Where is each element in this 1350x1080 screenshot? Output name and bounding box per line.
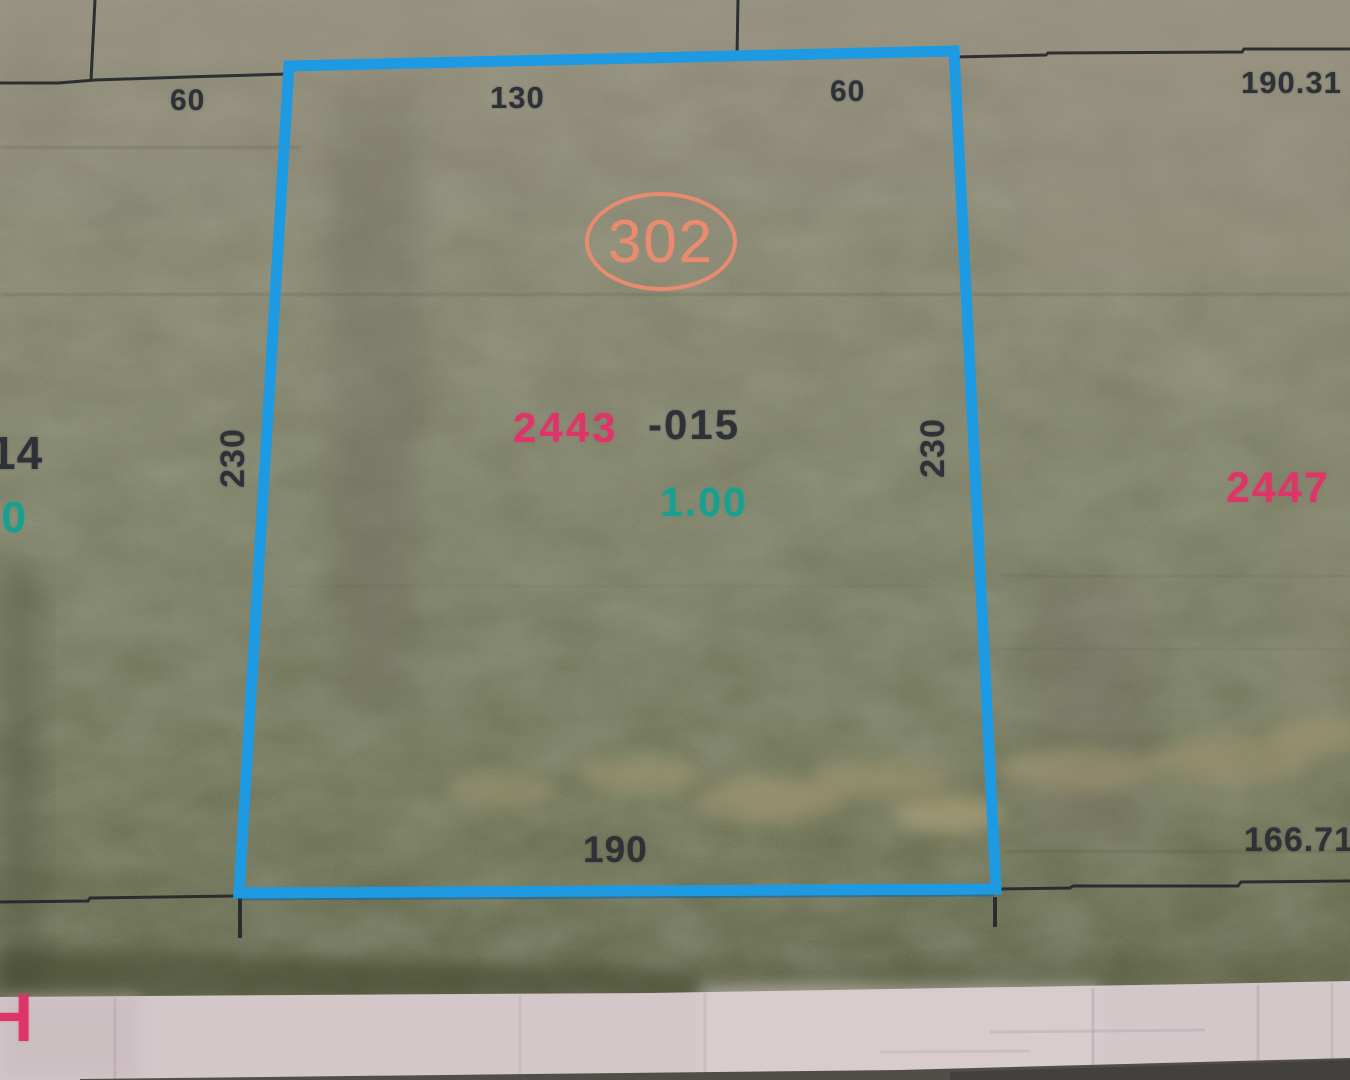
parcel-circle-badge: 302 [585,192,737,291]
dim-left-230-wrap: 230 [178,436,288,480]
dim-top-right-60: 60 [830,77,865,107]
dim-bottom-right-166-71: 166.71 [1244,823,1350,857]
parcel-circle-number: 302 [608,207,714,276]
parcel-acreage: 1.00 [660,482,748,523]
left-parcel-id-partial: 14 [0,430,43,476]
parcel-suffix: -015 [648,404,740,446]
plat-map-photo: 302 60 130 60 190.31 14 00 230 230 2443 … [0,0,1350,1080]
parcel-book-id: 2443 [513,407,618,449]
dim-right-190-31: 190.31 [1241,67,1342,98]
left-parcel-acreage-partial: 00 [0,496,27,540]
right-parcel-id: 2447 [1226,467,1330,510]
dim-bottom-190: 190 [583,831,648,868]
dim-right-230: 230 [916,418,950,478]
dim-top-left-60: 60 [170,86,205,116]
aerial-photo-background [0,0,1350,1080]
bottom-left-letter-partial: H [0,984,34,1052]
dim-right-230-wrap: 230 [878,426,988,470]
dim-left-230: 230 [216,428,250,488]
survey-tick-top-center [737,0,738,56]
road-strip [0,981,1350,1080]
dim-top-130: 130 [490,82,545,113]
